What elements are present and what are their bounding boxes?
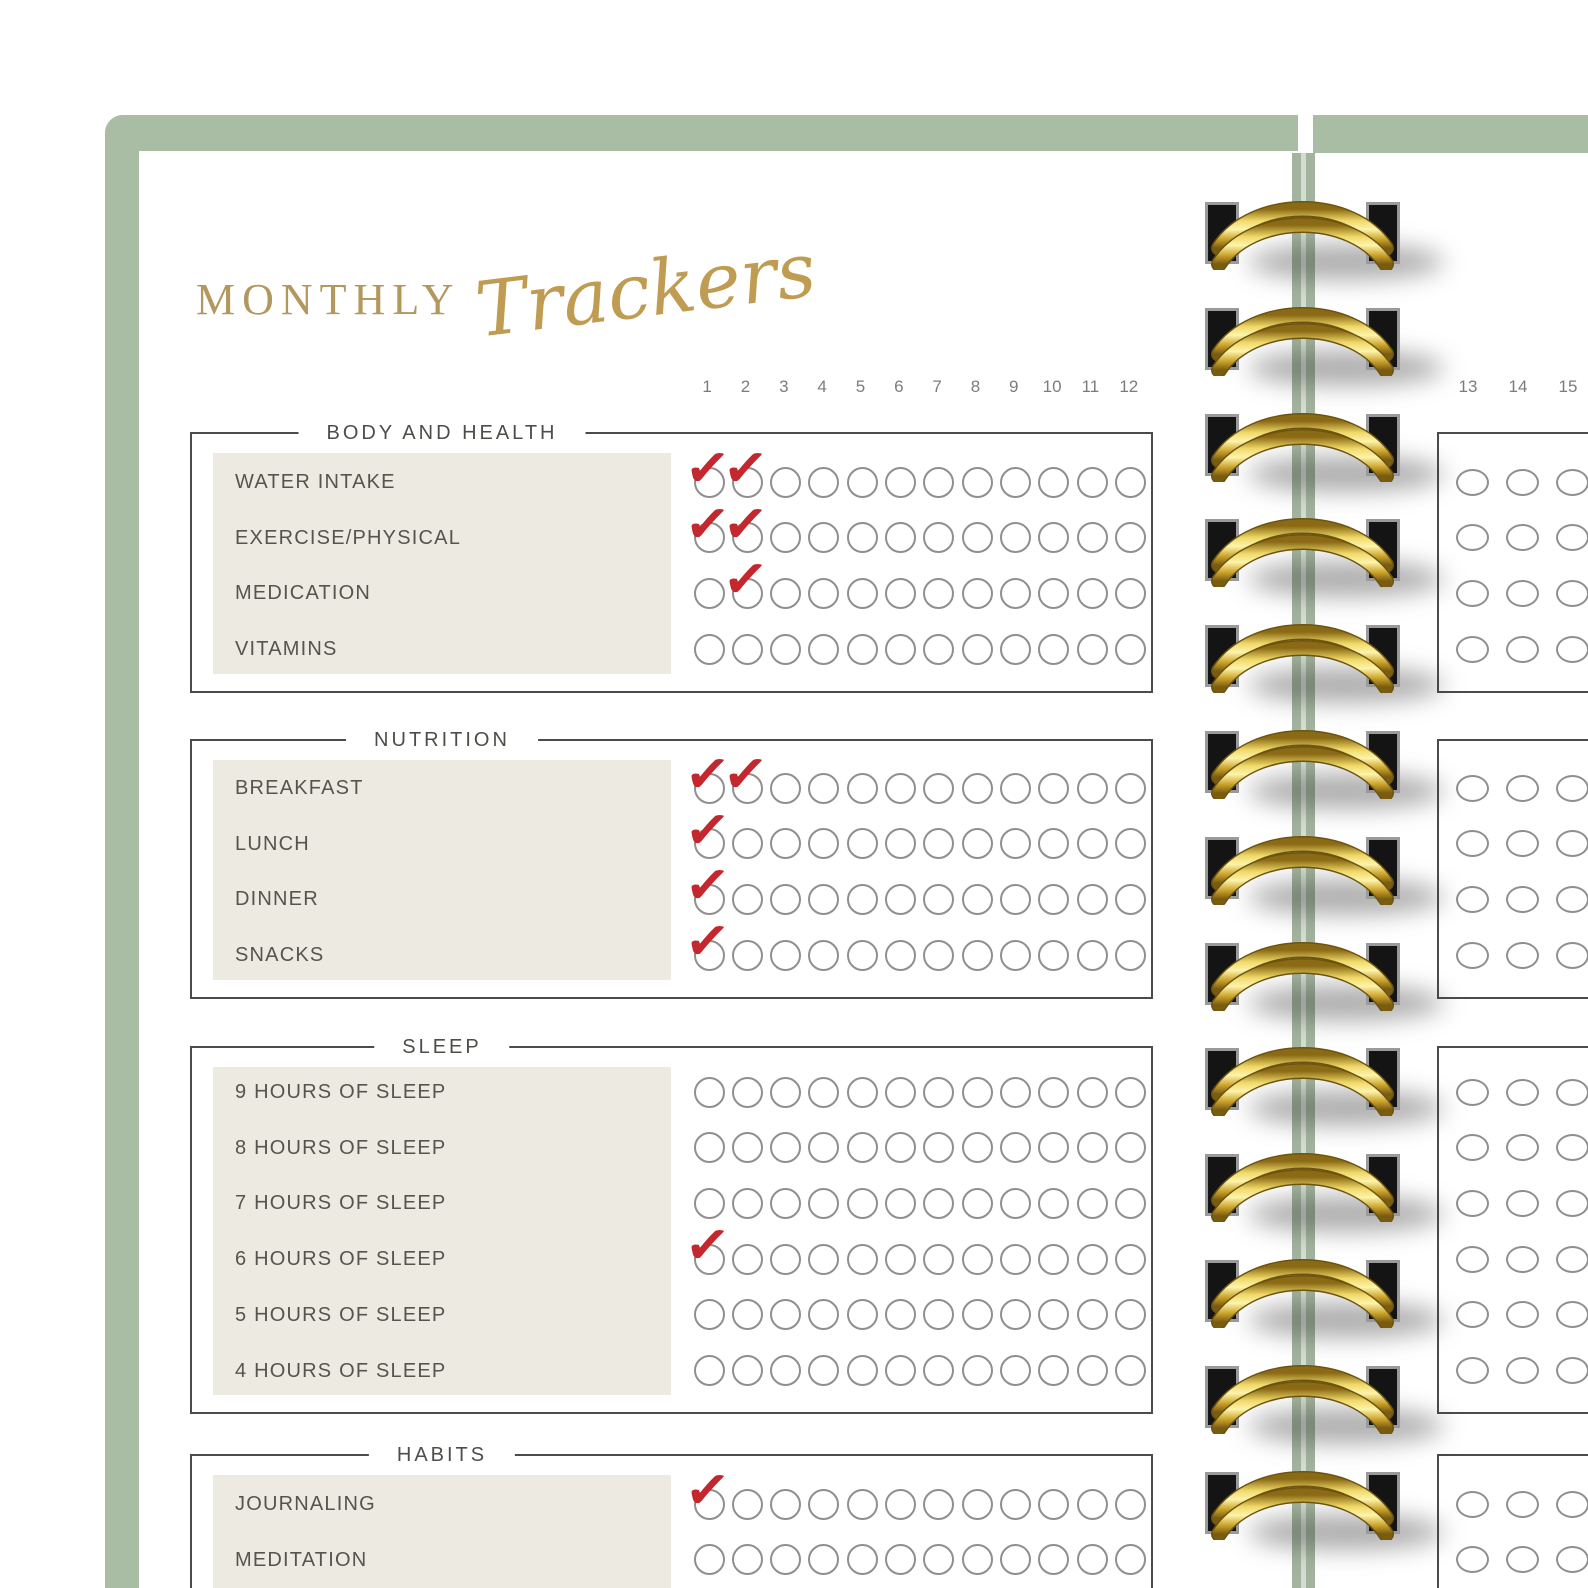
day-circle[interactable] (885, 1188, 916, 1219)
day-circle[interactable] (1556, 1491, 1588, 1518)
day-circle[interactable] (1506, 1546, 1539, 1573)
day-circle[interactable] (962, 940, 993, 971)
check-icon[interactable]: ✓ (721, 745, 772, 803)
day-circle[interactable] (1506, 886, 1539, 913)
day-circle[interactable] (808, 1077, 839, 1108)
day-circle[interactable] (1506, 1491, 1539, 1518)
day-circle[interactable] (1556, 580, 1588, 607)
day-circle[interactable] (1556, 886, 1588, 913)
day-circle[interactable] (1000, 1132, 1031, 1163)
day-circle[interactable] (770, 522, 801, 553)
day-circle[interactable] (1077, 773, 1108, 804)
day-circle[interactable] (885, 1355, 916, 1386)
day-circle[interactable] (1000, 828, 1031, 859)
day-circle[interactable] (1038, 773, 1069, 804)
day-circle[interactable] (1506, 524, 1539, 551)
day-circle[interactable] (1000, 773, 1031, 804)
day-circle[interactable] (770, 828, 801, 859)
day-circle[interactable] (1115, 884, 1146, 915)
day-circle[interactable] (885, 578, 916, 609)
day-circle[interactable] (1115, 1188, 1146, 1219)
tracker-section-body-and-health: BODY AND HEALTHWATER INTAKE✓✓EXERCISE/PH… (190, 432, 1153, 693)
day-circle[interactable] (732, 1299, 763, 1330)
day-circle[interactable] (1506, 580, 1539, 607)
day-circle[interactable] (923, 1244, 954, 1275)
day-circle[interactable] (808, 578, 839, 609)
day-circle[interactable] (1115, 634, 1146, 665)
day-circle[interactable] (770, 1188, 801, 1219)
day-circle[interactable] (1000, 940, 1031, 971)
day-circle[interactable] (1456, 1546, 1489, 1573)
day-circle[interactable] (1038, 1244, 1069, 1275)
day-circle[interactable] (1077, 1355, 1108, 1386)
day-circle[interactable] (847, 522, 878, 553)
day-circle[interactable] (962, 467, 993, 498)
day-circle[interactable] (770, 634, 801, 665)
tracker-section-sleep: SLEEP9 HOURS OF SLEEP8 HOURS OF SLEEP7 H… (190, 1046, 1153, 1414)
day-circle[interactable] (1506, 775, 1539, 802)
day-circle[interactable] (1115, 1244, 1146, 1275)
day-circle[interactable] (808, 828, 839, 859)
tracker-section-nutrition: NUTRITIONBREAKFAST✓✓LUNCH✓DINNER✓SNACKS✓ (190, 739, 1153, 999)
spiral-ring (1205, 1142, 1400, 1222)
tracker-section-habits: HABITSJOURNALING✓MEDITATION (190, 1454, 1153, 1588)
day-number: 5 (841, 377, 879, 397)
day-circle[interactable] (732, 884, 763, 915)
day-number: 14 (1493, 377, 1543, 397)
day-number: 2 (726, 377, 764, 397)
day-circle[interactable] (1556, 830, 1588, 857)
day-circle[interactable] (962, 884, 993, 915)
day-circle[interactable] (770, 884, 801, 915)
day-circle[interactable] (732, 1244, 763, 1275)
day-circle[interactable] (923, 522, 954, 553)
day-circle[interactable] (1115, 828, 1146, 859)
day-circle[interactable] (1000, 1544, 1031, 1575)
day-circle[interactable] (808, 773, 839, 804)
day-circle[interactable] (923, 1188, 954, 1219)
tracker-section-right (1437, 1454, 1588, 1588)
right-page-frame (1313, 115, 1588, 153)
day-circle[interactable] (1506, 830, 1539, 857)
check-icon[interactable]: ✓ (721, 550, 772, 608)
day-circle[interactable] (808, 522, 839, 553)
day-circle[interactable] (923, 1355, 954, 1386)
day-circle[interactable] (1038, 1544, 1069, 1575)
day-circle[interactable] (962, 828, 993, 859)
day-circle[interactable] (1556, 1357, 1588, 1384)
day-circle[interactable] (770, 1489, 801, 1520)
day-circle[interactable] (1456, 775, 1489, 802)
day-circle[interactable] (923, 1077, 954, 1108)
day-circle[interactable] (694, 1544, 725, 1575)
day-circle[interactable] (694, 1077, 725, 1108)
day-circle[interactable] (1038, 1299, 1069, 1330)
day-circle[interactable] (1115, 522, 1146, 553)
tracker-row-label: EXERCISE/PHYSICAL (235, 526, 461, 550)
day-circle[interactable] (1077, 940, 1108, 971)
day-circle[interactable] (923, 1132, 954, 1163)
day-circle[interactable] (694, 634, 725, 665)
tracker-row-label: BREAKFAST (235, 776, 364, 800)
day-circle[interactable] (1456, 1079, 1489, 1106)
day-circle[interactable] (770, 1132, 801, 1163)
tracker-row-label: 5 HOURS OF SLEEP (235, 1303, 446, 1327)
day-number: 15 (1543, 377, 1588, 397)
day-circle[interactable] (923, 828, 954, 859)
day-circle[interactable] (962, 1355, 993, 1386)
day-circle[interactable] (847, 1077, 878, 1108)
day-circle[interactable] (1038, 828, 1069, 859)
day-circle[interactable] (1038, 467, 1069, 498)
day-circle[interactable] (770, 1544, 801, 1575)
day-circle[interactable] (1506, 1301, 1539, 1328)
tracker-row-label: 6 HOURS OF SLEEP (235, 1247, 446, 1271)
tracker-row-label: 8 HOURS OF SLEEP (235, 1136, 446, 1160)
day-circle[interactable] (885, 467, 916, 498)
day-circle[interactable] (694, 1132, 725, 1163)
day-circle[interactable] (885, 1077, 916, 1108)
day-circle[interactable] (962, 1132, 993, 1163)
day-circle[interactable] (923, 1489, 954, 1520)
day-number: 11 (1071, 377, 1109, 397)
day-number: 7 (918, 377, 956, 397)
day-circle[interactable] (1038, 1355, 1069, 1386)
day-circle[interactable] (1038, 1188, 1069, 1219)
day-circle[interactable] (1000, 634, 1031, 665)
day-circle[interactable] (1077, 522, 1108, 553)
day-circle[interactable] (962, 1489, 993, 1520)
day-circle[interactable] (1556, 1546, 1588, 1573)
planner-spread: MONTHLY Trackers 123456789101112 131415 … (0, 0, 1588, 1588)
day-circle[interactable] (847, 1244, 878, 1275)
day-circle[interactable] (808, 940, 839, 971)
day-circle[interactable] (1000, 578, 1031, 609)
day-circle[interactable] (1077, 634, 1108, 665)
check-icon[interactable]: ✓ (682, 1216, 733, 1274)
section-title: HABITS (369, 1443, 515, 1467)
day-circle[interactable] (1038, 578, 1069, 609)
day-circle[interactable] (732, 1355, 763, 1386)
tracker-row-label: JOURNALING (235, 1492, 376, 1516)
day-circle[interactable] (1506, 1357, 1539, 1384)
label-panel (213, 1067, 671, 1395)
day-circle[interactable] (1000, 1489, 1031, 1520)
day-circle[interactable] (808, 634, 839, 665)
day-circle[interactable] (808, 1355, 839, 1386)
spiral-ring (1205, 507, 1400, 587)
day-circle[interactable] (1000, 467, 1031, 498)
check-icon[interactable]: ✓ (682, 912, 733, 970)
day-circle[interactable] (885, 773, 916, 804)
day-circle[interactable] (847, 940, 878, 971)
day-circle[interactable] (1456, 580, 1489, 607)
day-circle[interactable] (1556, 524, 1588, 551)
day-number: 6 (880, 377, 918, 397)
day-circle[interactable] (885, 828, 916, 859)
day-circle[interactable] (808, 1132, 839, 1163)
day-circle[interactable] (1077, 884, 1108, 915)
day-circle[interactable] (847, 634, 878, 665)
spiral-ring (1205, 402, 1400, 482)
day-circle[interactable] (1506, 1246, 1539, 1273)
day-circle[interactable] (808, 1299, 839, 1330)
day-circle[interactable] (847, 1132, 878, 1163)
tracker-section-right (1437, 739, 1588, 999)
section-title: BODY AND HEALTH (299, 421, 586, 445)
day-circle[interactable] (770, 940, 801, 971)
day-circle[interactable] (1077, 578, 1108, 609)
day-circle[interactable] (923, 578, 954, 609)
day-circle[interactable] (770, 1355, 801, 1386)
day-circle[interactable] (1077, 1489, 1108, 1520)
spiral-ring (1205, 719, 1400, 799)
day-circle[interactable] (732, 1489, 763, 1520)
day-circle[interactable] (732, 1188, 763, 1219)
day-circle[interactable] (1000, 1299, 1031, 1330)
day-circle[interactable] (1456, 830, 1489, 857)
day-number: 1 (688, 377, 726, 397)
day-circle[interactable] (1556, 636, 1588, 663)
day-circle[interactable] (962, 1544, 993, 1575)
day-circle[interactable] (1000, 1355, 1031, 1386)
day-circle[interactable] (770, 1077, 801, 1108)
day-circle[interactable] (770, 1244, 801, 1275)
day-circle[interactable] (732, 634, 763, 665)
tracker-row-label: 9 HOURS OF SLEEP (235, 1080, 446, 1104)
day-circle[interactable] (847, 1355, 878, 1386)
day-number: 13 (1443, 377, 1493, 397)
day-circle[interactable] (694, 1299, 725, 1330)
day-circle[interactable] (1556, 1134, 1588, 1161)
day-circle[interactable] (1506, 942, 1539, 969)
day-circle[interactable] (1115, 773, 1146, 804)
day-circle[interactable] (962, 773, 993, 804)
day-circle[interactable] (1506, 1079, 1539, 1106)
day-circle[interactable] (1456, 636, 1489, 663)
day-circle[interactable] (885, 940, 916, 971)
day-circle[interactable] (1038, 1132, 1069, 1163)
day-circle[interactable] (1000, 1244, 1031, 1275)
day-circle[interactable] (1115, 1077, 1146, 1108)
spiral-ring (1205, 1460, 1400, 1540)
day-circle[interactable] (847, 1188, 878, 1219)
day-circle[interactable] (1115, 1132, 1146, 1163)
section-title: NUTRITION (346, 728, 538, 752)
check-icon[interactable]: ✓ (721, 439, 772, 497)
day-circle[interactable] (1456, 1357, 1489, 1384)
day-circle[interactable] (923, 773, 954, 804)
day-circle[interactable] (923, 1544, 954, 1575)
day-circle[interactable] (1556, 1246, 1588, 1273)
day-circle[interactable] (885, 1544, 916, 1575)
day-circle[interactable] (885, 1132, 916, 1163)
day-circle[interactable] (847, 467, 878, 498)
day-circle[interactable] (1556, 469, 1588, 496)
tracker-section-right (1437, 1046, 1588, 1414)
day-circle[interactable] (1077, 467, 1108, 498)
day-circle[interactable] (808, 1244, 839, 1275)
day-circle[interactable] (847, 1299, 878, 1330)
day-circle[interactable] (1456, 469, 1489, 496)
day-circle[interactable] (1077, 1244, 1108, 1275)
day-circle[interactable] (1038, 940, 1069, 971)
day-circle[interactable] (923, 940, 954, 971)
day-number: 8 (956, 377, 994, 397)
day-circle[interactable] (1556, 775, 1588, 802)
day-circle[interactable] (962, 1299, 993, 1330)
day-circle[interactable] (1506, 636, 1539, 663)
day-circle[interactable] (923, 467, 954, 498)
day-circle[interactable] (732, 1544, 763, 1575)
day-circle[interactable] (732, 1132, 763, 1163)
day-circle[interactable] (1077, 1077, 1108, 1108)
day-circle[interactable] (847, 773, 878, 804)
day-circle[interactable] (808, 1544, 839, 1575)
day-circle[interactable] (1456, 886, 1489, 913)
day-circle[interactable] (1456, 1246, 1489, 1273)
day-circle[interactable] (1038, 884, 1069, 915)
tracker-row-label: VITAMINS (235, 637, 338, 661)
day-number: 10 (1033, 377, 1071, 397)
day-circle[interactable] (808, 884, 839, 915)
day-circle[interactable] (1038, 634, 1069, 665)
day-circle[interactable] (1000, 1077, 1031, 1108)
day-circle[interactable] (1556, 1301, 1588, 1328)
day-circle[interactable] (885, 634, 916, 665)
tracker-row-label: 7 HOURS OF SLEEP (235, 1191, 446, 1215)
day-circle[interactable] (1038, 522, 1069, 553)
day-circle[interactable] (1506, 1190, 1539, 1217)
tracker-row-label: WATER INTAKE (235, 470, 396, 494)
day-circle[interactable] (1077, 1544, 1108, 1575)
day-circle[interactable] (847, 1544, 878, 1575)
day-circle[interactable] (923, 884, 954, 915)
day-circle[interactable] (732, 940, 763, 971)
day-circle[interactable] (1456, 1190, 1489, 1217)
day-number-row-left: 123456789101112 (688, 377, 1148, 397)
day-circle[interactable] (1115, 1355, 1146, 1386)
day-circle[interactable] (885, 1244, 916, 1275)
check-icon[interactable]: ✓ (682, 1461, 733, 1519)
day-circle[interactable] (1556, 1079, 1588, 1106)
spiral-ring (1205, 296, 1400, 376)
tracker-row-label: 4 HOURS OF SLEEP (235, 1359, 446, 1383)
check-icon[interactable]: ✓ (682, 856, 733, 914)
day-circle[interactable] (1115, 1299, 1146, 1330)
tracker-row-label: MEDITATION (235, 1548, 367, 1572)
day-circle[interactable] (962, 578, 993, 609)
day-circle[interactable] (1077, 1132, 1108, 1163)
day-circle[interactable] (1115, 940, 1146, 971)
section-title: SLEEP (374, 1035, 509, 1059)
day-circle[interactable] (1038, 1077, 1069, 1108)
day-circle[interactable] (808, 467, 839, 498)
day-circle[interactable] (1506, 1134, 1539, 1161)
day-circle[interactable] (770, 578, 801, 609)
day-circle[interactable] (923, 1299, 954, 1330)
day-number: 12 (1110, 377, 1148, 397)
day-circle[interactable] (694, 1355, 725, 1386)
day-circle[interactable] (1000, 1188, 1031, 1219)
day-circle[interactable] (732, 1077, 763, 1108)
day-circle[interactable] (1456, 942, 1489, 969)
tracker-section-right (1437, 432, 1588, 693)
day-circle[interactable] (847, 1489, 878, 1520)
day-circle[interactable] (1556, 1190, 1588, 1217)
day-circle[interactable] (885, 884, 916, 915)
spiral-ring (1205, 613, 1400, 693)
spiral-ring (1205, 1354, 1400, 1434)
tracker-row-label: MEDICATION (235, 581, 371, 605)
day-circle[interactable] (923, 634, 954, 665)
day-number: 9 (995, 377, 1033, 397)
day-circle[interactable] (1456, 524, 1489, 551)
spiral-ring (1205, 931, 1400, 1011)
day-circle[interactable] (1000, 884, 1031, 915)
day-circle[interactable] (847, 828, 878, 859)
tracker-row-label: SNACKS (235, 943, 324, 967)
day-circle[interactable] (962, 634, 993, 665)
spiral-ring (1205, 190, 1400, 270)
day-circle[interactable] (962, 1244, 993, 1275)
spiral-ring (1205, 1036, 1400, 1116)
tracker-row-label: LUNCH (235, 832, 310, 856)
day-circle[interactable] (1456, 1134, 1489, 1161)
day-circle[interactable] (847, 578, 878, 609)
spiral-ring (1205, 825, 1400, 905)
day-circle[interactable] (1077, 1188, 1108, 1219)
page-title: MONTHLY Trackers (196, 252, 816, 328)
day-circle[interactable] (962, 1077, 993, 1108)
day-circle[interactable] (1456, 1301, 1489, 1328)
day-circle[interactable] (770, 467, 801, 498)
day-number: 3 (765, 377, 803, 397)
day-circle[interactable] (1115, 578, 1146, 609)
day-circle[interactable] (1115, 1544, 1146, 1575)
day-circle[interactable] (808, 1489, 839, 1520)
day-circle[interactable] (1077, 828, 1108, 859)
day-circle[interactable] (847, 884, 878, 915)
day-circle[interactable] (885, 1489, 916, 1520)
day-circle[interactable] (885, 1299, 916, 1330)
day-circle[interactable] (1115, 467, 1146, 498)
day-circle[interactable] (1506, 469, 1539, 496)
day-circle[interactable] (1000, 522, 1031, 553)
day-circle[interactable] (770, 773, 801, 804)
day-circle[interactable] (1115, 1489, 1146, 1520)
spiral-ring (1205, 1248, 1400, 1328)
day-circle[interactable] (1038, 1489, 1069, 1520)
day-circle[interactable] (770, 1299, 801, 1330)
day-circle[interactable] (962, 1188, 993, 1219)
day-circle[interactable] (885, 522, 916, 553)
day-circle[interactable] (1077, 1299, 1108, 1330)
day-circle[interactable] (962, 522, 993, 553)
day-number-row-right: 131415 (1443, 377, 1588, 397)
tracker-row-label: DINNER (235, 887, 319, 911)
day-circle[interactable] (1456, 1491, 1489, 1518)
day-number: 4 (803, 377, 841, 397)
day-circle[interactable] (1556, 942, 1588, 969)
page-title-serif: MONTHLY (196, 252, 461, 322)
day-circle[interactable] (808, 1188, 839, 1219)
day-circle[interactable] (732, 828, 763, 859)
